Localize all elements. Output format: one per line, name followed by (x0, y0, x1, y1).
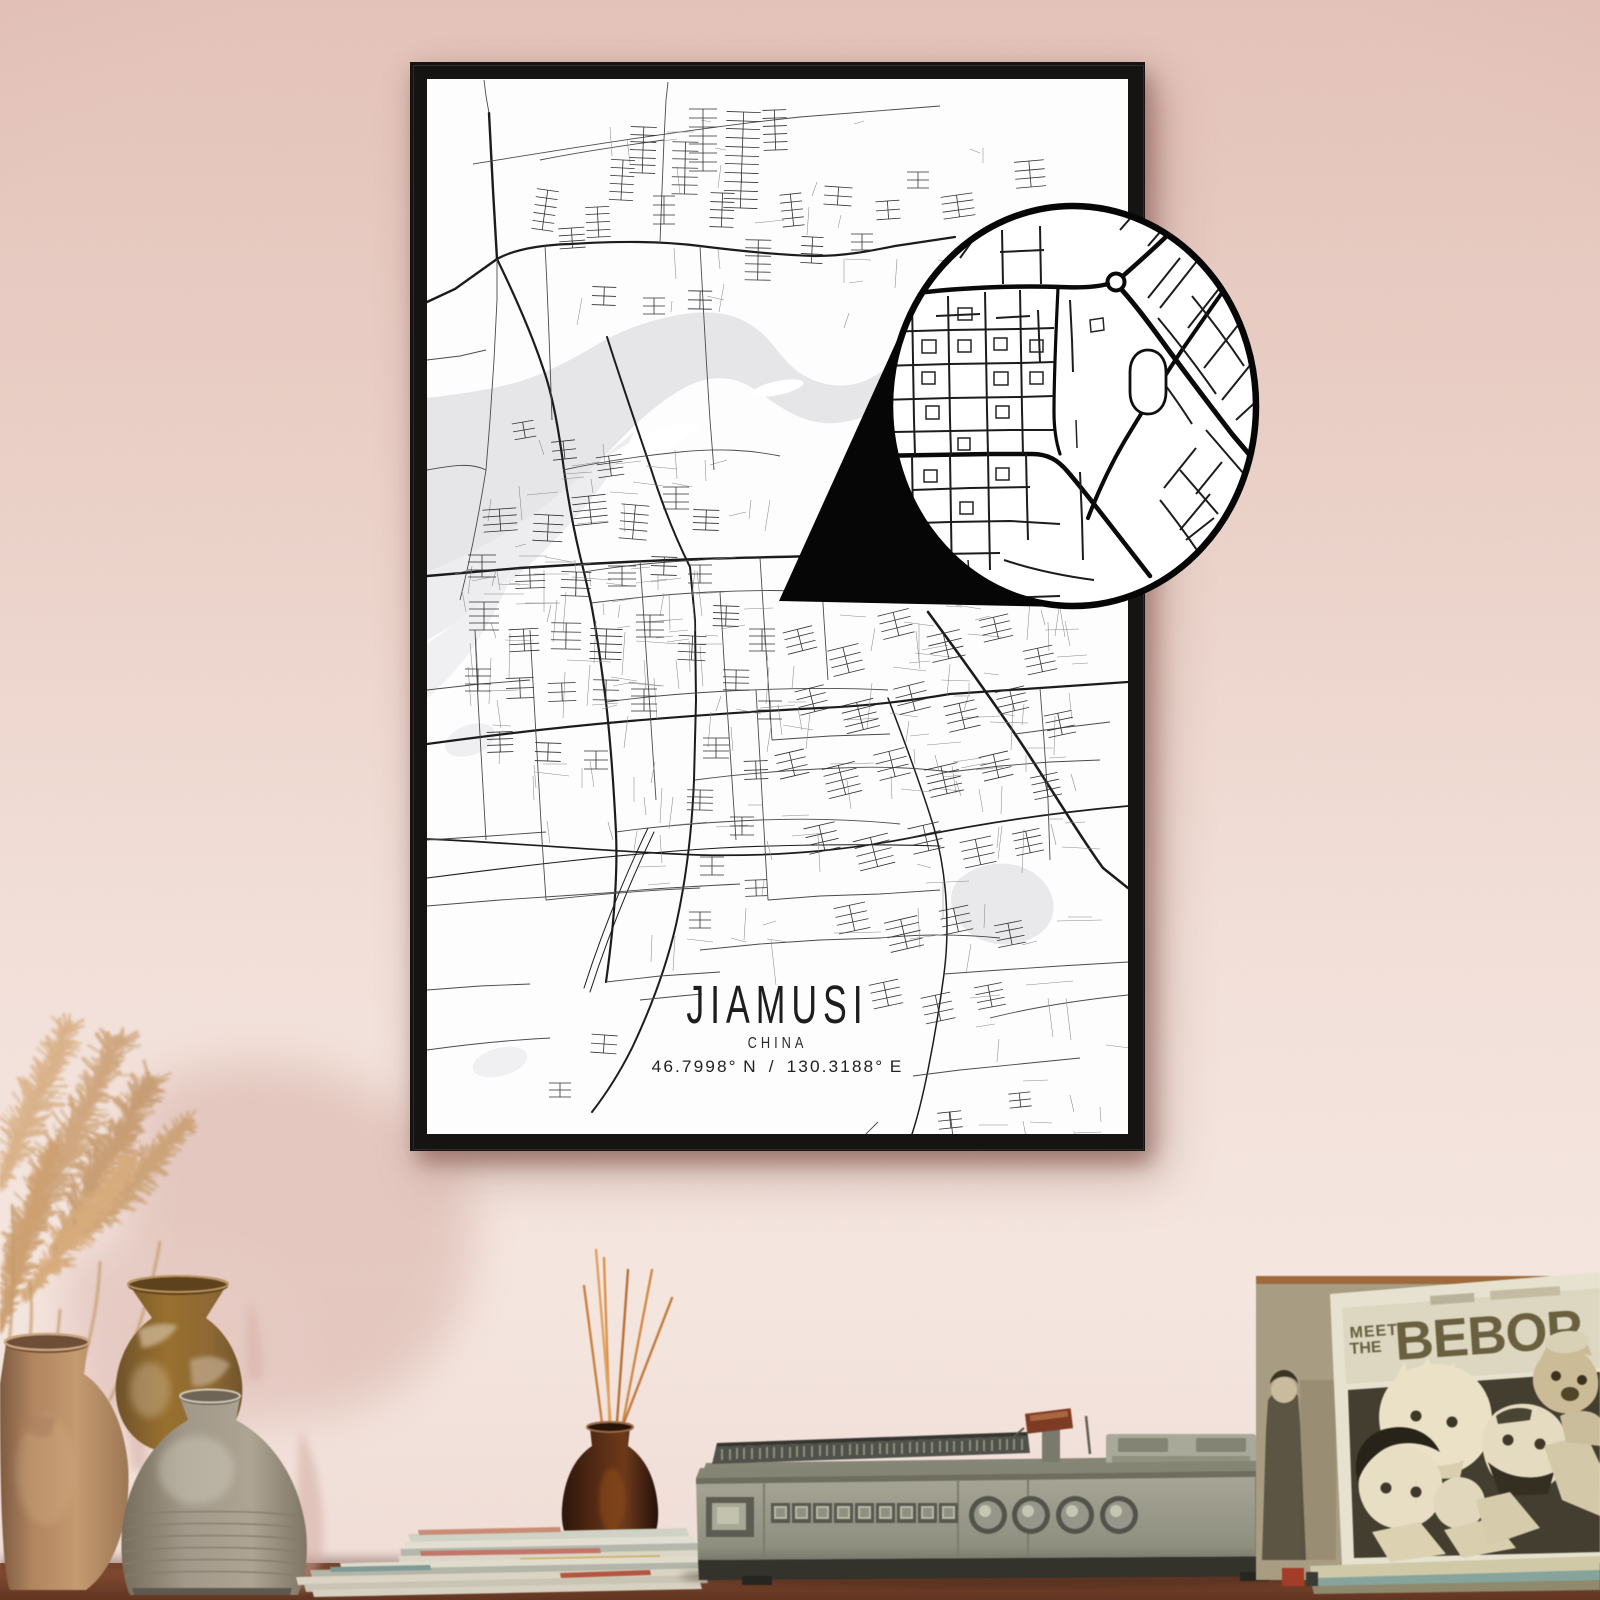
svg-text:THE: THE (1349, 1339, 1382, 1358)
